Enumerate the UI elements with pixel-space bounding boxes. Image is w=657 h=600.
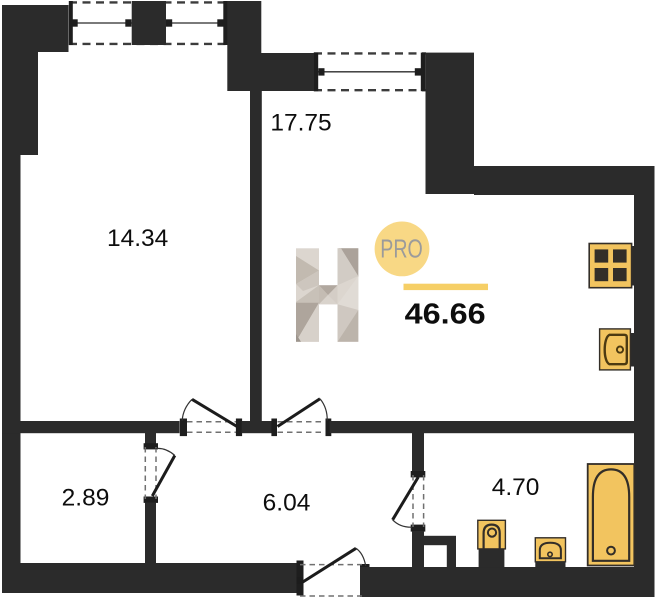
svg-text:6.04: 6.04	[263, 490, 311, 517]
svg-text:14.34: 14.34	[107, 225, 168, 252]
svg-text:46.66: 46.66	[405, 298, 486, 330]
svg-text:17.75: 17.75	[270, 110, 331, 137]
svg-text:PRO: PRO	[380, 233, 423, 263]
svg-text:2.89: 2.89	[62, 485, 110, 512]
svg-text:4.70: 4.70	[492, 474, 540, 501]
